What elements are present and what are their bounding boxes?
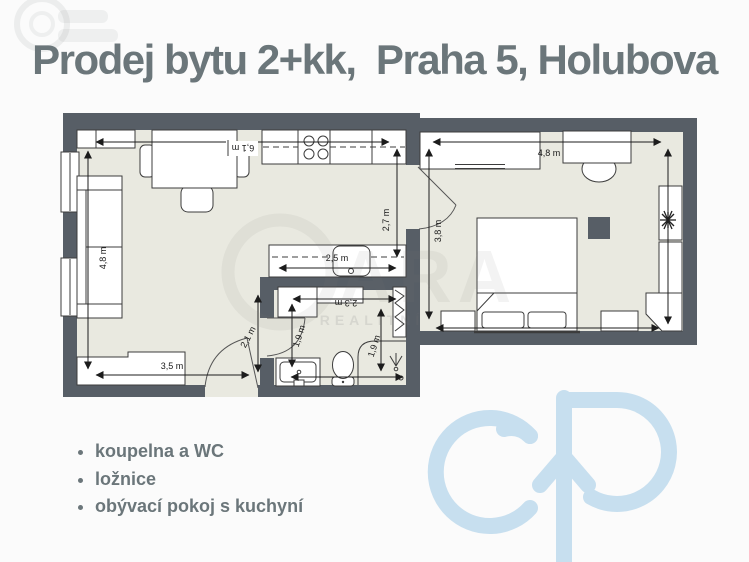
bathroom-wall-left-upper (260, 277, 274, 318)
entrance-opening (205, 385, 258, 397)
dark-cabinet (588, 217, 610, 239)
dim-label-kitchen-right: 2,7 m (381, 209, 391, 232)
toilet (332, 352, 354, 387)
kitchen-counter (262, 130, 406, 164)
desk (563, 131, 631, 163)
wardrobe (420, 132, 540, 169)
dining-table (152, 130, 237, 188)
feature-item-bedroom: ložnice (95, 466, 303, 494)
brand-logo (436, 398, 669, 562)
washbasin (276, 358, 320, 386)
dim-label-bedroom-top: 4,8 m (538, 148, 561, 158)
logo-c-curl (504, 428, 530, 436)
window-upper (61, 152, 79, 212)
wall-shelf (77, 130, 135, 148)
feature-item-living: obývací pokoj s kuchyní (95, 493, 303, 521)
center-watermark-big-text: ARA (339, 235, 517, 318)
bathroom-wall-left-lower (260, 358, 274, 385)
flyer-canvas: 6,1 m 4,8 m 3,5 m 2,7 m 2,5 m 2,3 m 2,1 … (0, 0, 749, 562)
window-lower (61, 258, 79, 316)
dim-label-living-bottom: 3,5 m (161, 361, 184, 371)
feature-list: koupelna a WC ložnice obývací pokoj s ku… (73, 438, 303, 521)
wall-cabinet-lower (659, 242, 682, 293)
dim-label-living-left: 4,8 m (98, 247, 108, 270)
logo-p-bowl (564, 400, 669, 504)
feature-item-bathroom: koupelna a WC (95, 438, 303, 466)
bedroom-door-opening (405, 165, 420, 229)
page-title: Prodej bytu 2+kk, Praha 5, Holubova (0, 36, 749, 84)
dim-label-living-top: 6,1 m (232, 143, 255, 153)
center-watermark-small-text: REALITNÍ (320, 312, 425, 328)
